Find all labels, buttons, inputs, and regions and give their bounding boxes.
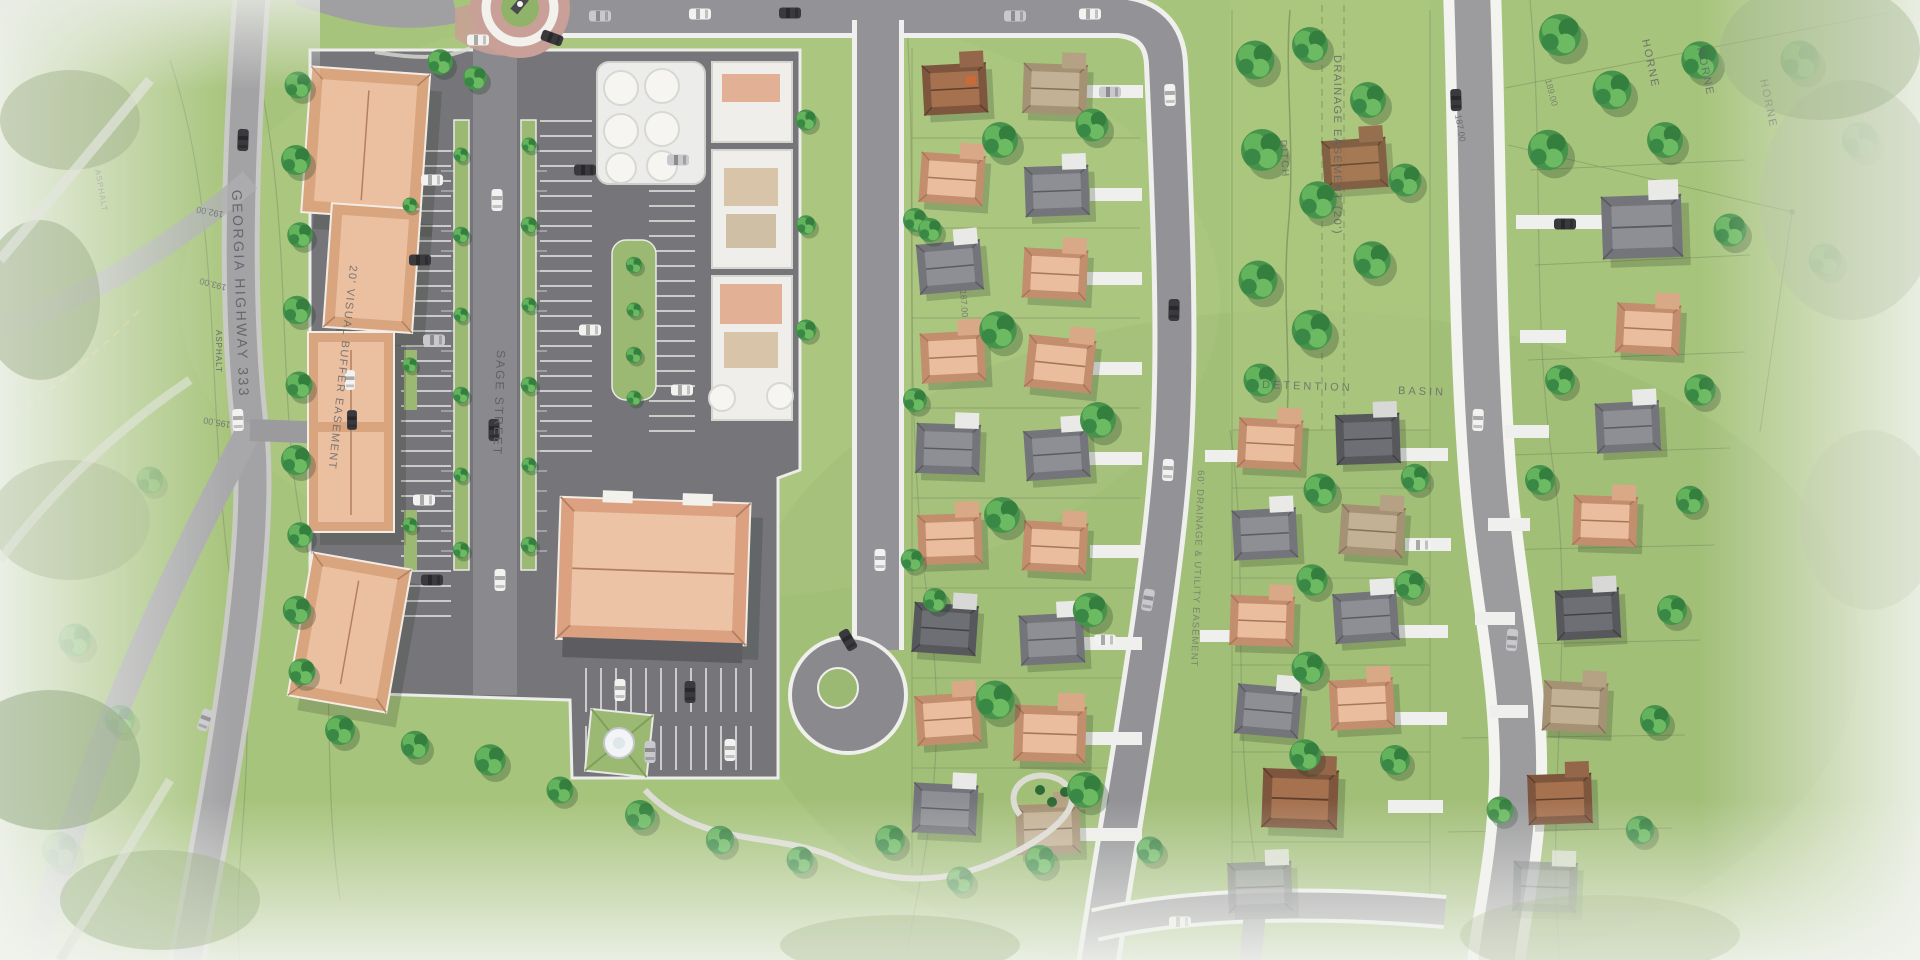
car — [492, 189, 503, 211]
car — [1094, 635, 1116, 646]
car — [645, 741, 656, 763]
car — [232, 409, 244, 431]
commercial-building-2 — [308, 332, 406, 545]
car — [689, 9, 711, 20]
car — [725, 739, 736, 761]
car — [1472, 409, 1484, 431]
car — [409, 255, 431, 266]
car — [421, 175, 443, 186]
car — [1450, 89, 1462, 111]
car — [667, 155, 689, 166]
car — [423, 335, 445, 346]
car — [1554, 219, 1576, 230]
culdesac-island — [818, 668, 858, 708]
fountain-plaza — [585, 709, 653, 777]
roundabout-west-road — [300, 0, 455, 13]
car — [1168, 299, 1179, 321]
car — [1164, 84, 1176, 106]
car — [495, 569, 506, 591]
car — [574, 165, 596, 176]
car — [1004, 11, 1026, 22]
sage-verge-east — [521, 120, 536, 570]
site-plan: GEORGIA HIGHWAY 333 SAGE STREET 20' VISU… — [0, 0, 1920, 960]
car — [1506, 629, 1519, 652]
car — [615, 679, 626, 701]
car — [467, 35, 489, 46]
site-plan-canvas: GEORGIA HIGHWAY 333 SAGE STREET 20' VISU… — [0, 0, 1920, 960]
car — [1099, 87, 1121, 98]
car — [347, 410, 357, 430]
car — [1162, 459, 1174, 482]
mixed-use-complex — [709, 62, 793, 420]
car — [875, 549, 886, 571]
car — [413, 495, 435, 506]
label-basin: BASIN — [1398, 385, 1446, 399]
car — [1079, 9, 1101, 20]
car — [671, 385, 693, 396]
roundabout-monument-top — [517, 1, 523, 7]
silo-canopy-cluster — [597, 62, 705, 184]
car — [237, 129, 249, 151]
car — [685, 681, 696, 703]
sage-verge-west — [454, 120, 469, 570]
car — [779, 8, 801, 19]
car — [579, 325, 601, 336]
chimney — [966, 76, 976, 85]
car — [589, 11, 611, 22]
label-drainage-easement: DRAINAGE EASEMENT (20') — [1331, 55, 1343, 235]
label-contour-187b: 187.00 — [958, 289, 970, 317]
car — [421, 575, 443, 586]
commercial-building-4 — [555, 489, 764, 664]
car — [1409, 540, 1431, 551]
